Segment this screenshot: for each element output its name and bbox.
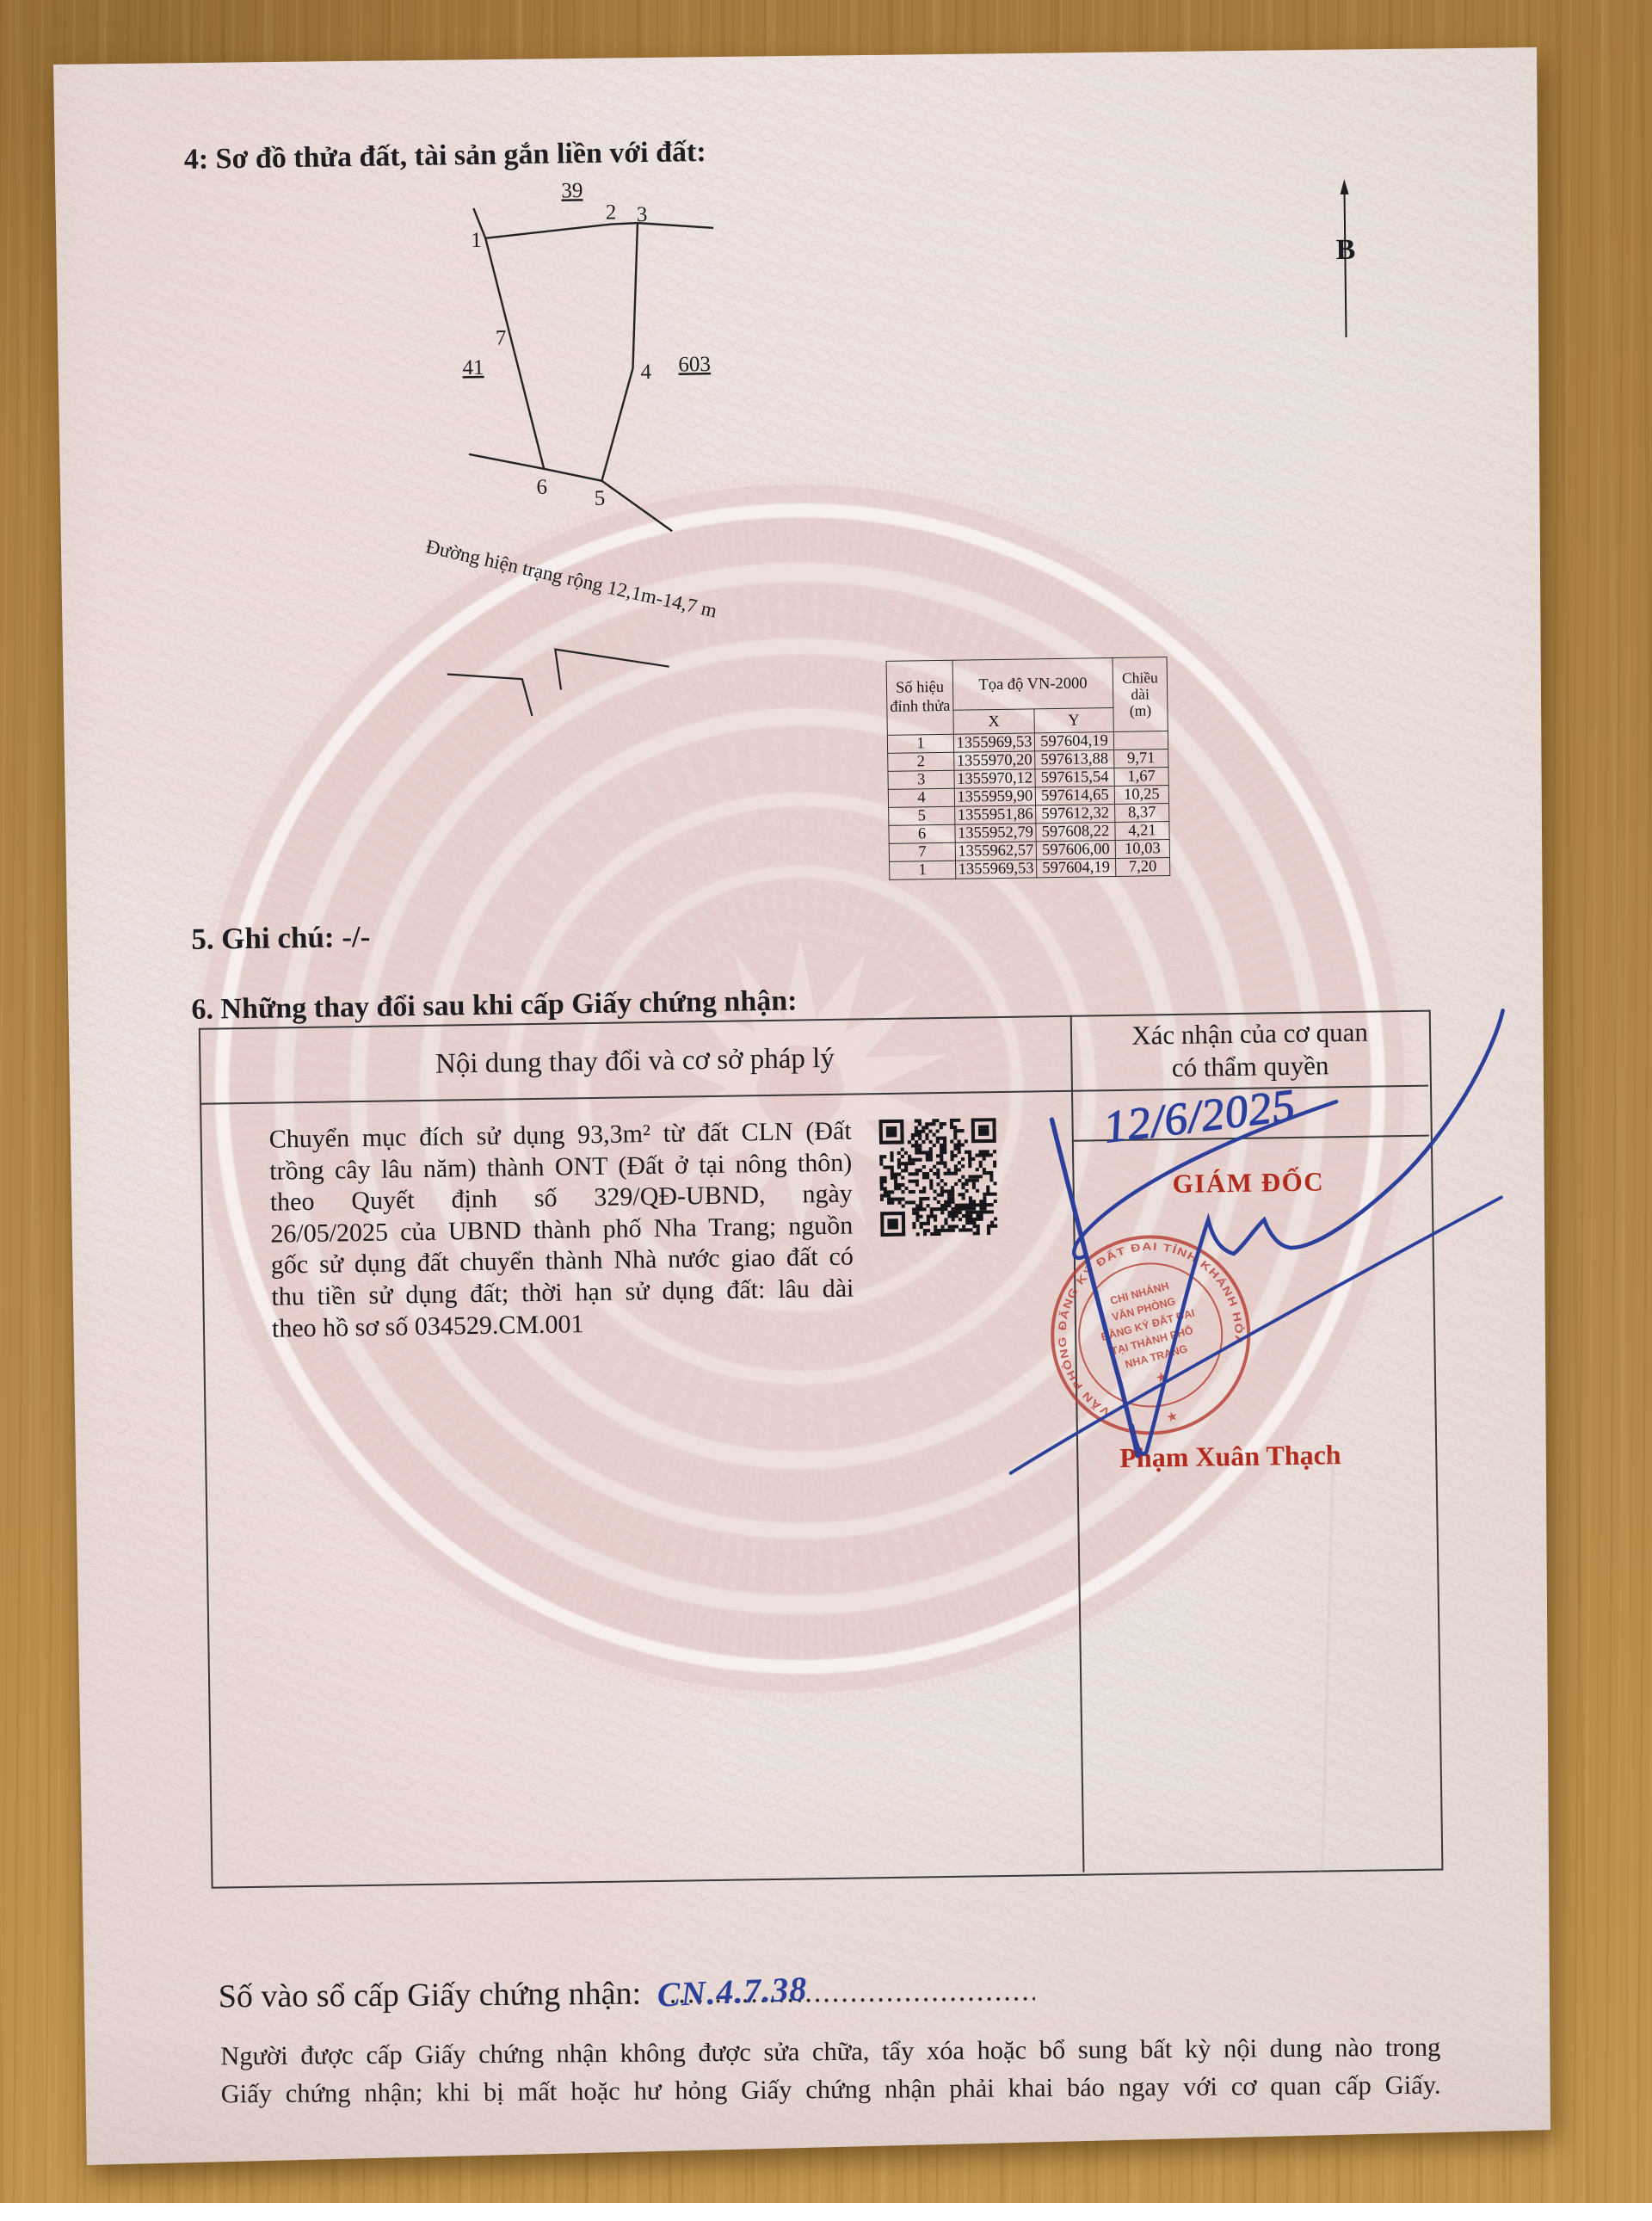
svg-text:6: 6 bbox=[536, 476, 547, 499]
svg-text:2: 2 bbox=[606, 201, 617, 225]
svg-text:39: 39 bbox=[561, 179, 583, 202]
svg-text:41: 41 bbox=[462, 356, 484, 379]
svg-text:5: 5 bbox=[595, 487, 606, 510]
svg-text:1: 1 bbox=[471, 229, 482, 252]
svg-text:Đường hiện trạng rộng 12,1m-14: Đường hiện trạng rộng 12,1m-14,7 m bbox=[424, 535, 719, 621]
svg-text:7: 7 bbox=[496, 326, 507, 349]
svg-text:3: 3 bbox=[637, 203, 648, 226]
svg-text:603: 603 bbox=[678, 353, 711, 377]
svg-text:4: 4 bbox=[640, 361, 651, 384]
svg-text:B: B bbox=[1335, 234, 1355, 266]
